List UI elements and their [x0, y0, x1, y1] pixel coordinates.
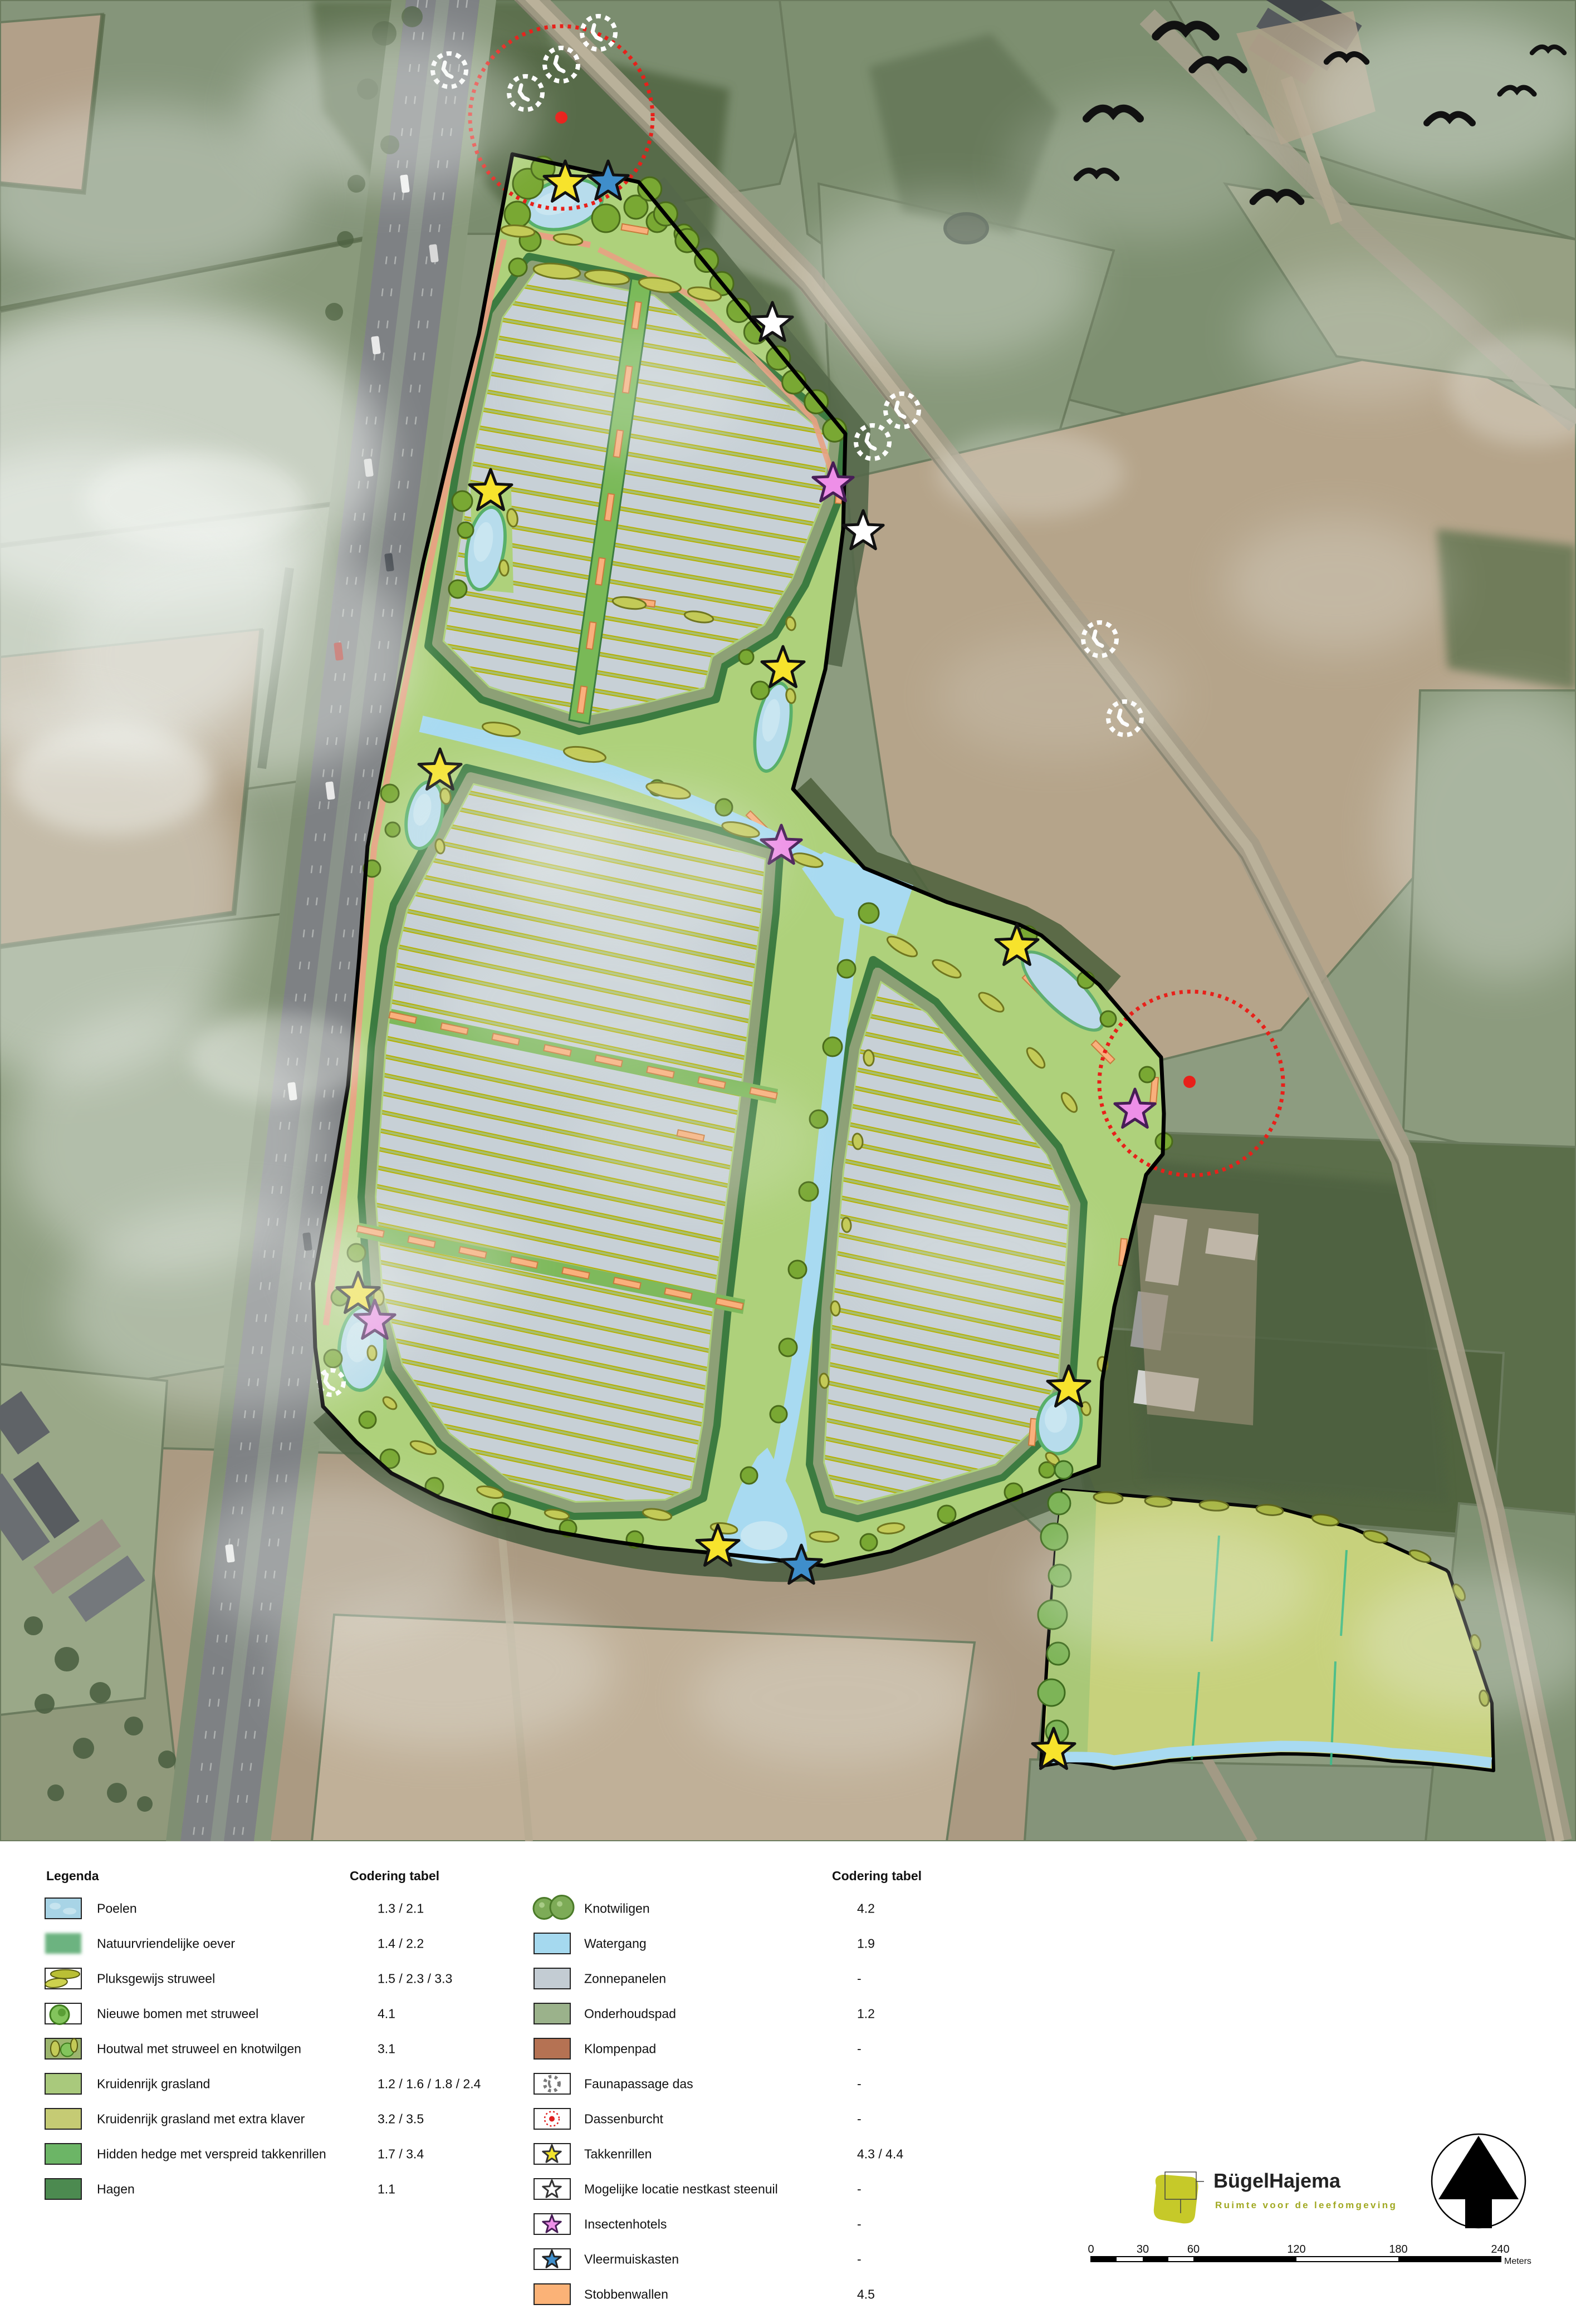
svg-text:-: - [857, 1972, 862, 1986]
svg-text:Mogelijke locatie nestkast ste: Mogelijke locatie nestkast steenuil [584, 2182, 778, 2196]
svg-text:180: 180 [1389, 2243, 1407, 2256]
svg-text:-: - [857, 2217, 862, 2232]
svg-text:4.5: 4.5 [857, 2287, 875, 2302]
svg-text:30: 30 [1137, 2243, 1149, 2256]
svg-text:Codering tabel: Codering tabel [832, 1869, 922, 1883]
svg-text:Faunapassage das: Faunapassage das [584, 2077, 693, 2091]
svg-text:Ruimte voor de leefomgeving: Ruimte voor de leefomgeving [1215, 2200, 1397, 2210]
svg-text:1.3 / 2.1: 1.3 / 2.1 [378, 1901, 424, 1916]
svg-text:4.3 / 4.4: 4.3 / 4.4 [857, 2147, 903, 2161]
svg-text:3.1: 3.1 [378, 2042, 395, 2056]
svg-text:Kruidenrijk grasland met extra: Kruidenrijk grasland met extra klaver [97, 2112, 305, 2126]
svg-text:Stobbenwallen: Stobbenwallen [584, 2287, 668, 2302]
svg-text:Dassenburcht: Dassenburcht [584, 2112, 664, 2126]
svg-text:1.1: 1.1 [378, 2182, 395, 2196]
svg-text:Legenda: Legenda [46, 1869, 99, 1883]
svg-text:Knotwiligen: Knotwiligen [584, 1901, 650, 1916]
svg-text:1.2: 1.2 [857, 2007, 875, 2021]
svg-text:Insectenhotels: Insectenhotels [584, 2217, 667, 2232]
svg-text:1.7 / 3.4: 1.7 / 3.4 [378, 2147, 424, 2161]
svg-text:-: - [857, 2112, 862, 2126]
svg-text:Vleermuiskasten: Vleermuiskasten [584, 2252, 679, 2267]
svg-text:Houtwal met struweel en knotwi: Houtwal met struweel en knotwilgen [97, 2042, 301, 2056]
svg-text:-: - [857, 2077, 862, 2091]
svg-text:4.1: 4.1 [378, 2007, 395, 2021]
svg-text:Codering tabel: Codering tabel [350, 1869, 439, 1883]
svg-text:Pluksgewijs struweel: Pluksgewijs struweel [97, 1972, 215, 1986]
svg-text:Zonnepanelen: Zonnepanelen [584, 1972, 666, 1986]
svg-text:0: 0 [1088, 2243, 1094, 2256]
svg-text:Onderhoudspad: Onderhoudspad [584, 2007, 676, 2021]
svg-text:Watergang: Watergang [584, 1936, 647, 1951]
svg-text:-: - [857, 2042, 862, 2056]
svg-text:1.5 / 2.3 / 3.3: 1.5 / 2.3 / 3.3 [378, 1972, 452, 1986]
svg-text:60: 60 [1187, 2243, 1200, 2256]
svg-text:Takkenrillen: Takkenrillen [584, 2147, 652, 2161]
svg-text:Kruidenrijk grasland: Kruidenrijk grasland [97, 2077, 210, 2091]
svg-text:1.4 / 2.2: 1.4 / 2.2 [378, 1936, 424, 1951]
svg-text:1.2 / 1.6 / 1.8 / 2.4: 1.2 / 1.6 / 1.8 / 2.4 [378, 2077, 481, 2091]
svg-text:Klompenpad: Klompenpad [584, 2042, 656, 2056]
svg-text:BügelHajema: BügelHajema [1213, 2169, 1341, 2192]
svg-text:Poelen: Poelen [97, 1901, 137, 1916]
svg-text:1.9: 1.9 [857, 1936, 875, 1951]
svg-text:120: 120 [1287, 2243, 1305, 2256]
svg-text:3.2 / 3.5: 3.2 / 3.5 [378, 2112, 424, 2126]
svg-text:Nieuwe bomen met struweel: Nieuwe bomen met struweel [97, 2007, 258, 2021]
svg-text:-: - [857, 2252, 862, 2267]
svg-text:Meters: Meters [1504, 2257, 1531, 2266]
svg-text:240: 240 [1491, 2243, 1509, 2256]
svg-text:-: - [857, 2182, 862, 2196]
svg-text:Hidden hedge met verspreid tak: Hidden hedge met verspreid takkenrillen [97, 2147, 326, 2161]
svg-text:Hagen: Hagen [97, 2182, 135, 2196]
svg-text:Natuurvriendelijke oever: Natuurvriendelijke oever [97, 1936, 235, 1951]
svg-text:4.2: 4.2 [857, 1901, 875, 1916]
